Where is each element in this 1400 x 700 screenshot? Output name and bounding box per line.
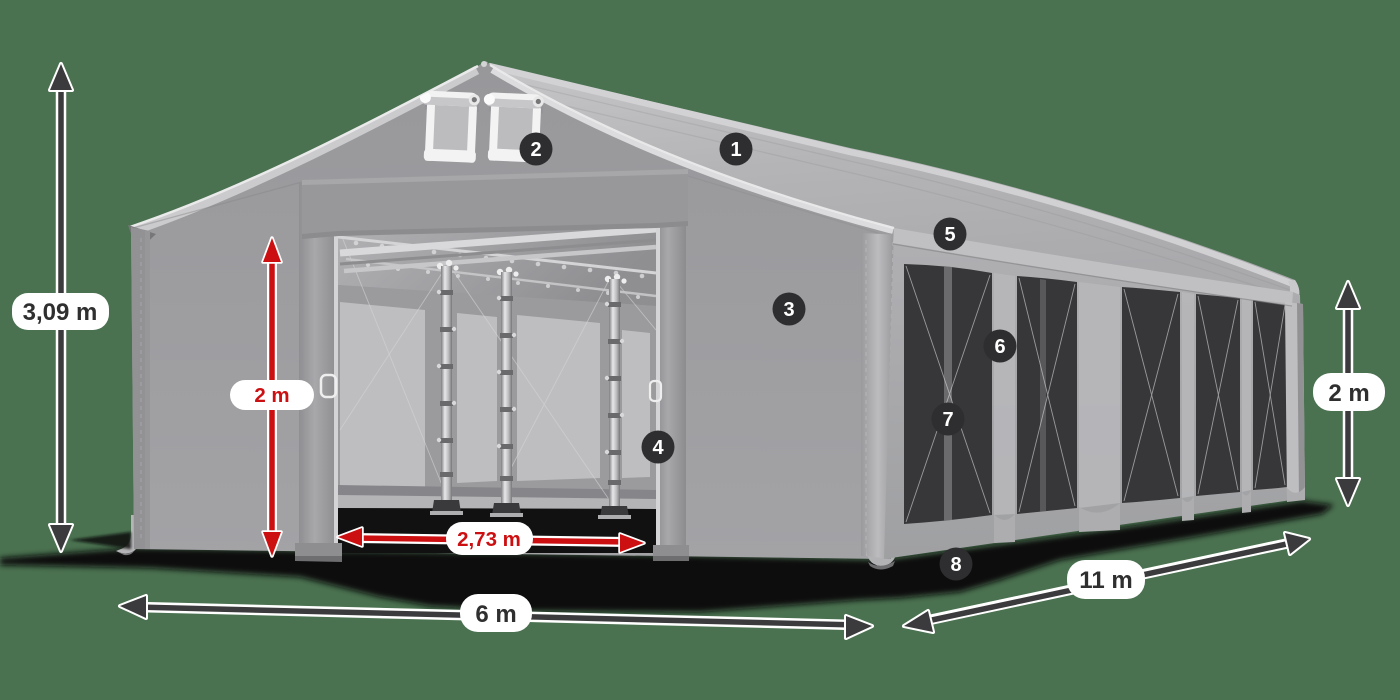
svg-text:8: 8: [950, 554, 961, 576]
svg-text:2 m: 2 m: [254, 384, 289, 407]
svg-text:3: 3: [783, 299, 794, 321]
svg-text:2 m: 2 m: [1328, 380, 1369, 407]
svg-text:4: 4: [652, 437, 664, 459]
svg-text:2: 2: [530, 139, 541, 161]
svg-text:1: 1: [730, 139, 741, 161]
svg-text:7: 7: [942, 409, 953, 431]
svg-text:3,09 m: 3,09 m: [23, 299, 98, 326]
svg-text:6 m: 6 m: [475, 601, 516, 628]
svg-text:5: 5: [944, 224, 955, 246]
svg-text:11 m: 11 m: [1079, 567, 1132, 594]
svg-text:2,73 m: 2,73 m: [457, 528, 521, 551]
svg-text:6: 6: [994, 336, 1005, 358]
